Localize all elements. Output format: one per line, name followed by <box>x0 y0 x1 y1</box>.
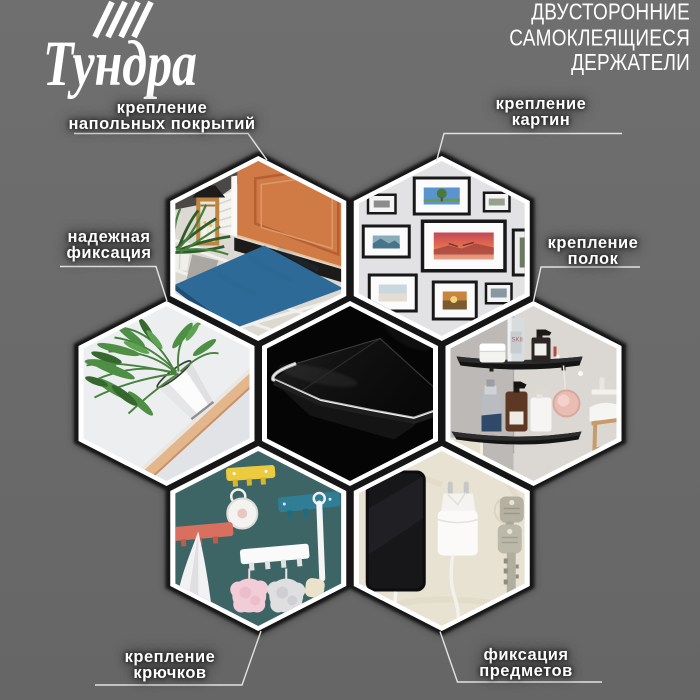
svg-text:SKII: SKII <box>512 338 524 344</box>
svg-text:Тундра: Тундра <box>43 27 197 100</box>
